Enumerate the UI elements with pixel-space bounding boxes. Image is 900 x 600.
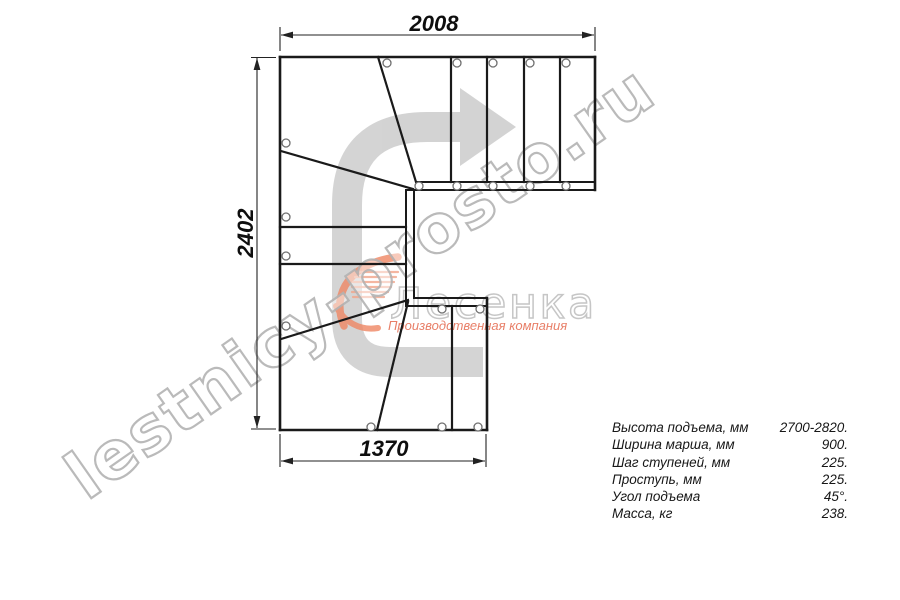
- dimension-left-label: 2402: [233, 208, 258, 259]
- spec-row-tread-depth: Проступь, мм 225.: [612, 471, 848, 488]
- spec-label: Масса, кг: [612, 505, 672, 522]
- spec-label: Высота подъема, мм: [612, 419, 748, 436]
- spec-row-rise-angle: Угол подъема 45°.: [612, 488, 848, 505]
- logo-tagline: Производственная компания: [388, 318, 567, 333]
- dimension-bottom-label: 1370: [360, 436, 410, 461]
- spec-label: Проступь, мм: [612, 471, 702, 488]
- staircase-drawing-canvas: Лесенка Производственная компания lestni…: [0, 0, 900, 600]
- spec-row-mass: Масса, кг 238.: [612, 505, 848, 522]
- spec-value: 225.: [822, 471, 848, 488]
- spec-row-flight-width: Ширина марша, мм 900.: [612, 436, 848, 453]
- specs-table: Высота подъема, мм 2700-2820. Ширина мар…: [612, 419, 848, 523]
- spec-value: 45°.: [824, 488, 848, 505]
- spec-row-step-pitch: Шаг ступеней, мм 225.: [612, 454, 848, 471]
- spec-value: 2700-2820.: [780, 419, 848, 436]
- spec-label: Угол подъема: [612, 488, 700, 505]
- dimension-top-label: 2008: [409, 11, 460, 36]
- spec-value: 225.: [822, 454, 848, 471]
- spec-row-height: Высота подъема, мм 2700-2820.: [612, 419, 848, 436]
- spec-value: 238.: [822, 505, 848, 522]
- spec-value: 900.: [822, 436, 848, 453]
- spec-label: Ширина марша, мм: [612, 436, 735, 453]
- spec-label: Шаг ступеней, мм: [612, 454, 730, 471]
